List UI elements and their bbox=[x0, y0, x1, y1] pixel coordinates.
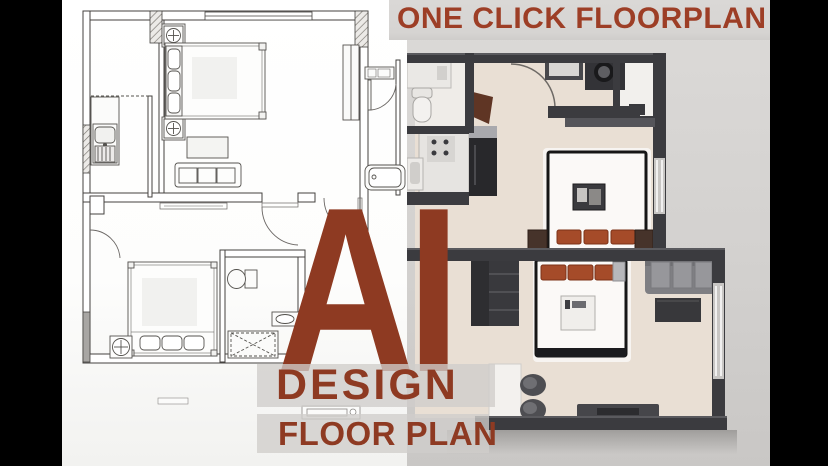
table-icon bbox=[187, 137, 228, 158]
nightstand-icon bbox=[528, 230, 547, 250]
bedroom1-3d bbox=[528, 152, 653, 250]
coffee-table-icon bbox=[655, 298, 701, 322]
sofa-3d-icon bbox=[645, 256, 715, 294]
floor-plan-label: FLOOR PLAN bbox=[257, 414, 489, 453]
nightstand-icon bbox=[635, 230, 653, 250]
bed-icon bbox=[128, 262, 217, 356]
chair-icon bbox=[520, 374, 546, 396]
sofa-icon bbox=[175, 163, 241, 187]
wardrobe-icon bbox=[343, 45, 359, 120]
toilet-icon bbox=[228, 270, 258, 289]
shower-icon bbox=[228, 331, 278, 358]
headline-text: ONE CLICK FLOORPLAN bbox=[397, 0, 770, 38]
design-label: DESIGN bbox=[257, 364, 495, 407]
letterbox-right bbox=[770, 0, 828, 466]
kitchen-2d bbox=[91, 96, 148, 165]
toilet-3d-icon bbox=[412, 88, 432, 122]
thumbnail-stage: ONE CLICK FLOORPLAN AI DESIGN FLOOR PLAN bbox=[0, 0, 828, 466]
letterbox-left bbox=[0, 0, 62, 466]
bedroom-bottom-2d bbox=[110, 262, 217, 358]
round-table-icon bbox=[110, 336, 132, 358]
wardrobe-tall-icon bbox=[471, 256, 519, 326]
window-2d bbox=[205, 12, 312, 20]
doormat-icon bbox=[577, 404, 659, 418]
lamp-table-icon bbox=[162, 117, 185, 140]
kitchen-sink-icon bbox=[93, 124, 117, 163]
bed-icon bbox=[165, 43, 266, 119]
fridge-icon bbox=[469, 126, 497, 196]
